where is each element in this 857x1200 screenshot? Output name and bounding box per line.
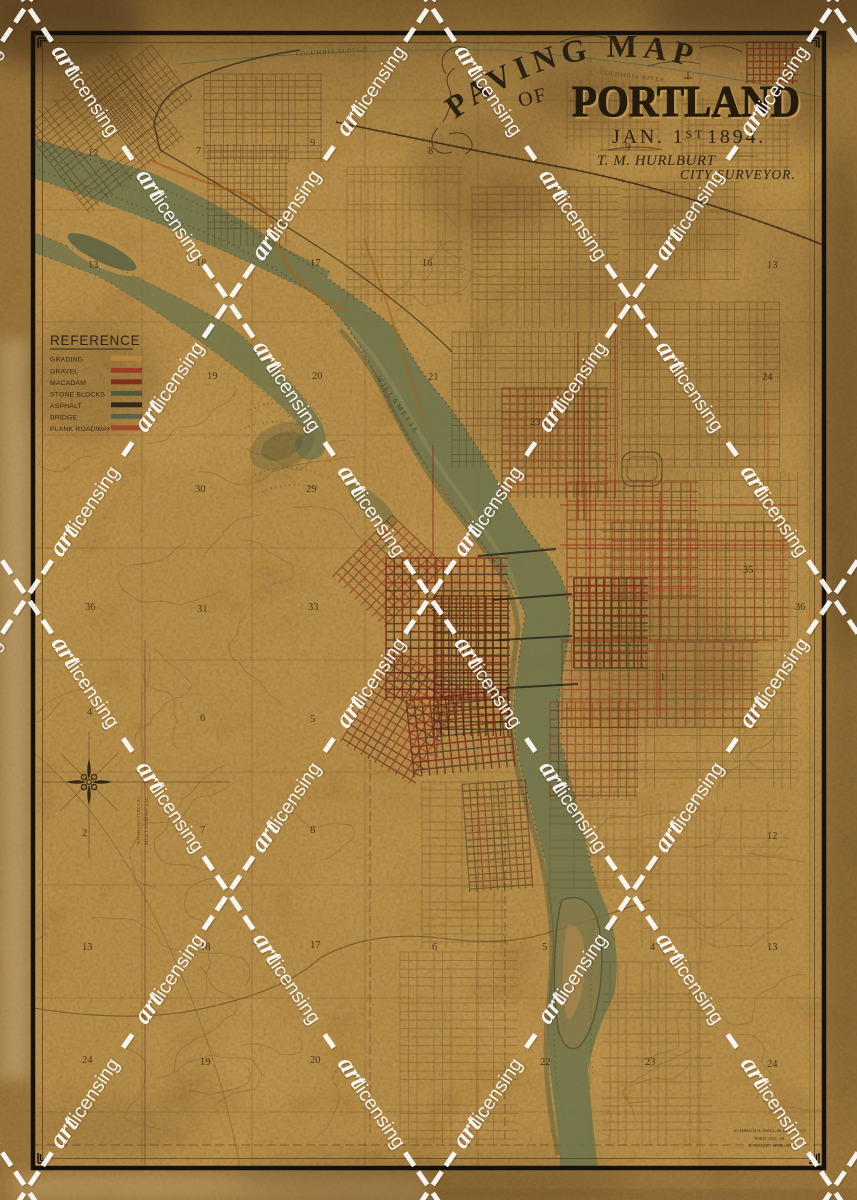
- svg-text:31: 31: [197, 604, 208, 615]
- svg-text:13: 13: [82, 942, 93, 953]
- svg-text:19: 19: [200, 1057, 211, 1068]
- svg-text:22: 22: [540, 1057, 551, 1068]
- svg-text:8: 8: [428, 146, 433, 157]
- svg-text:PLANK ROADWAY: PLANK ROADWAY: [50, 426, 111, 433]
- svg-text:6: 6: [200, 713, 205, 724]
- svg-text:12: 12: [88, 148, 99, 159]
- svg-text:23: 23: [645, 1057, 656, 1068]
- svg-text:2: 2: [82, 828, 87, 839]
- svg-text:36: 36: [795, 602, 806, 613]
- svg-text:7: 7: [196, 146, 201, 157]
- svg-text:MACADAM: MACADAM: [50, 380, 86, 387]
- svg-text:1: 1: [660, 672, 665, 683]
- svg-text:12: 12: [767, 831, 778, 842]
- svg-text:5: 5: [310, 714, 315, 725]
- svg-text:24: 24: [762, 372, 773, 383]
- svg-text:29: 29: [306, 484, 317, 495]
- svg-text:WASHINGTON CO.: WASHINGTON CO.: [137, 795, 142, 845]
- svg-text:16: 16: [422, 258, 433, 269]
- svg-text:19: 19: [207, 371, 218, 382]
- svg-text:E. SHELLEY MORGAN: E. SHELLEY MORGAN: [749, 1143, 792, 1148]
- svg-text:13: 13: [767, 942, 778, 953]
- svg-text:6: 6: [432, 942, 437, 953]
- svg-text:33: 33: [308, 602, 319, 613]
- svg-text:20: 20: [310, 1055, 321, 1066]
- svg-text:35: 35: [743, 565, 754, 576]
- svg-text:36: 36: [85, 602, 96, 613]
- svg-text:20: 20: [312, 371, 323, 382]
- svg-text:17: 17: [310, 940, 321, 951]
- svg-text:ASPHALT: ASPHALT: [50, 403, 82, 410]
- svg-text:21: 21: [428, 372, 439, 383]
- svg-text:MULTNOMAH CO.: MULTNOMAH CO.: [145, 796, 150, 845]
- svg-text:GRADING: GRADING: [50, 357, 83, 364]
- svg-text:9: 9: [310, 138, 315, 149]
- svg-text:GRAVEL: GRAVEL: [50, 369, 78, 376]
- svg-text:BRIDGE: BRIDGE: [50, 415, 78, 422]
- svg-text:13: 13: [767, 260, 778, 271]
- svg-text:5: 5: [542, 942, 547, 953]
- svg-text:30: 30: [195, 484, 206, 495]
- svg-text:17: 17: [310, 258, 321, 269]
- svg-text:REFERENCE: REFERENCE: [50, 333, 140, 348]
- svg-text:13: 13: [88, 260, 99, 271]
- svg-text:8: 8: [310, 825, 315, 836]
- svg-text:24: 24: [82, 1055, 93, 1066]
- svg-text:STONE BLOCKS: STONE BLOCKS: [50, 392, 105, 399]
- svg-text:CITY SURVEYOR.: CITY SURVEYOR.: [680, 167, 796, 182]
